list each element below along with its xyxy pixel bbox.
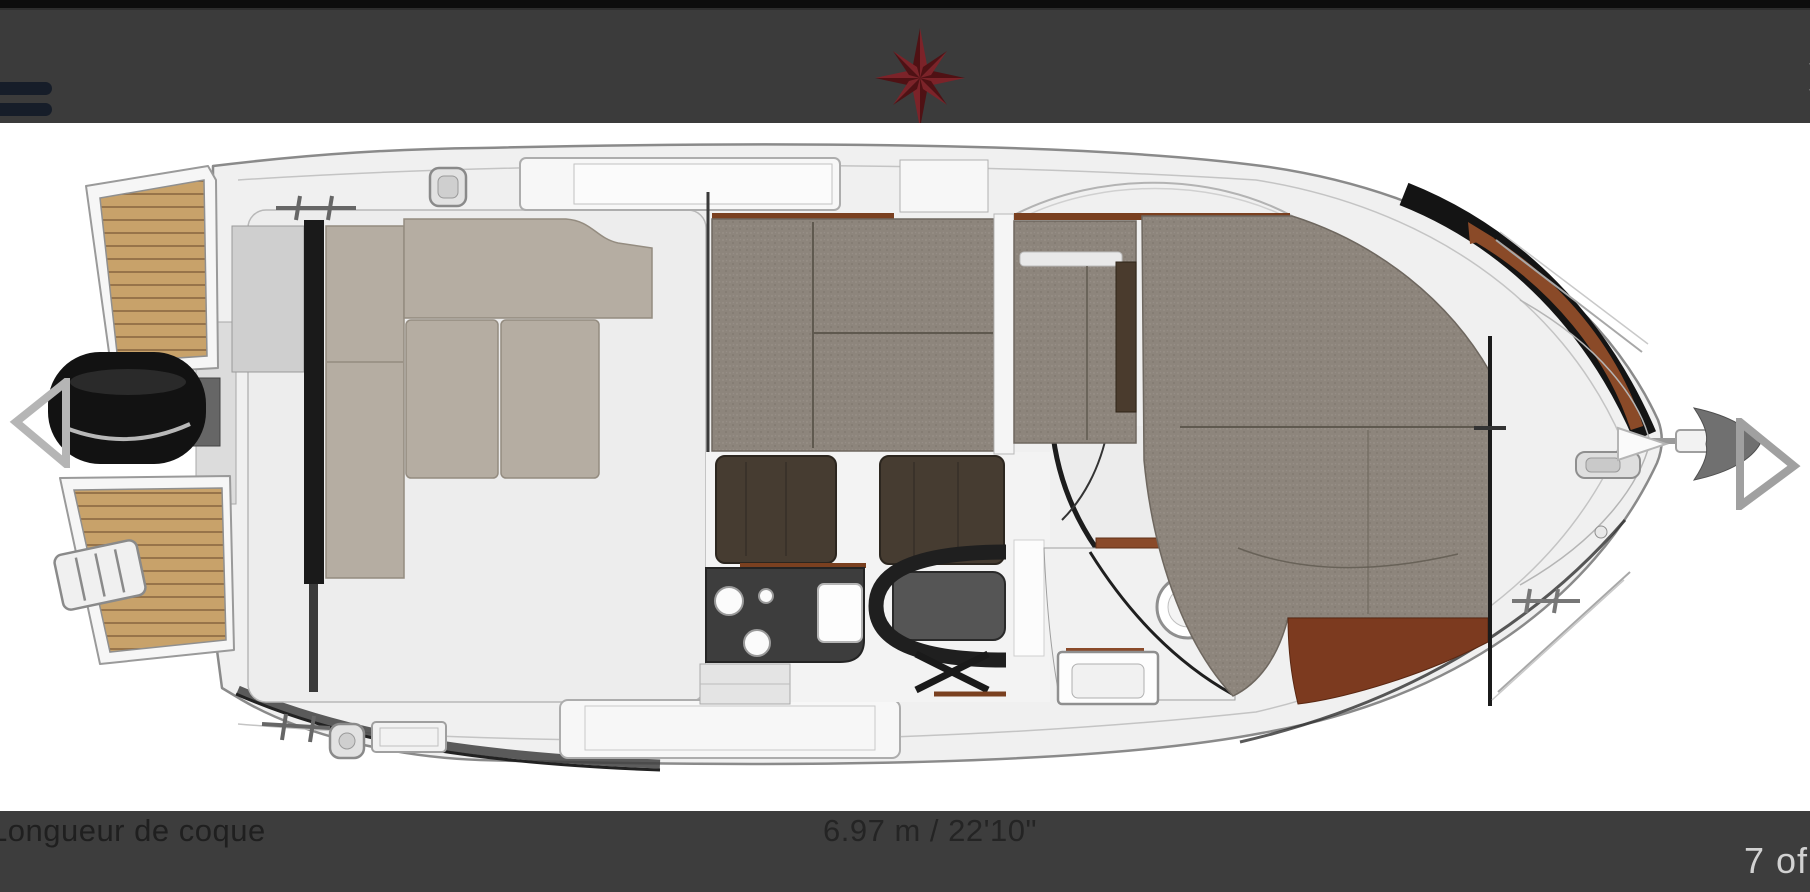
swim-platform-starboard [53,476,234,664]
spec-overlay-bar: Longueur de coque 6.97 m / 22'10" 7 of [0,811,1810,892]
wardrobe [1116,262,1136,412]
wheelhouse [700,192,1050,704]
hamburger-icon [0,82,52,95]
windshield-bulkhead [994,214,1014,454]
compass-rose-logo [870,26,970,130]
image-counter: 7 of [1744,840,1808,882]
spec-label: Longueur de coque [0,813,266,849]
cockpit [232,210,706,702]
transom-door-track [304,220,324,584]
prev-image-button[interactable] [8,378,78,468]
swim-platform-port [86,166,218,374]
chevron-left-icon [16,382,66,464]
engine-well-cover [232,226,304,372]
sink [715,587,743,615]
lightbox-viewer: ✕ [0,0,1810,892]
dinette-cushions [712,219,994,451]
boat-floorplan-image [0,123,1810,811]
top-strip [0,0,1810,10]
header-bar: ✕ [0,10,1810,123]
close-button[interactable]: ✕ [1803,50,1810,108]
head-sink-cabinet [1058,648,1158,704]
chevron-right-icon [1740,422,1794,506]
next-image-button[interactable] [1730,418,1802,510]
image-viewer [0,123,1810,811]
close-icon: ✕ [1803,46,1810,111]
spec-value: 6.97 m / 22'10" [823,813,1037,849]
